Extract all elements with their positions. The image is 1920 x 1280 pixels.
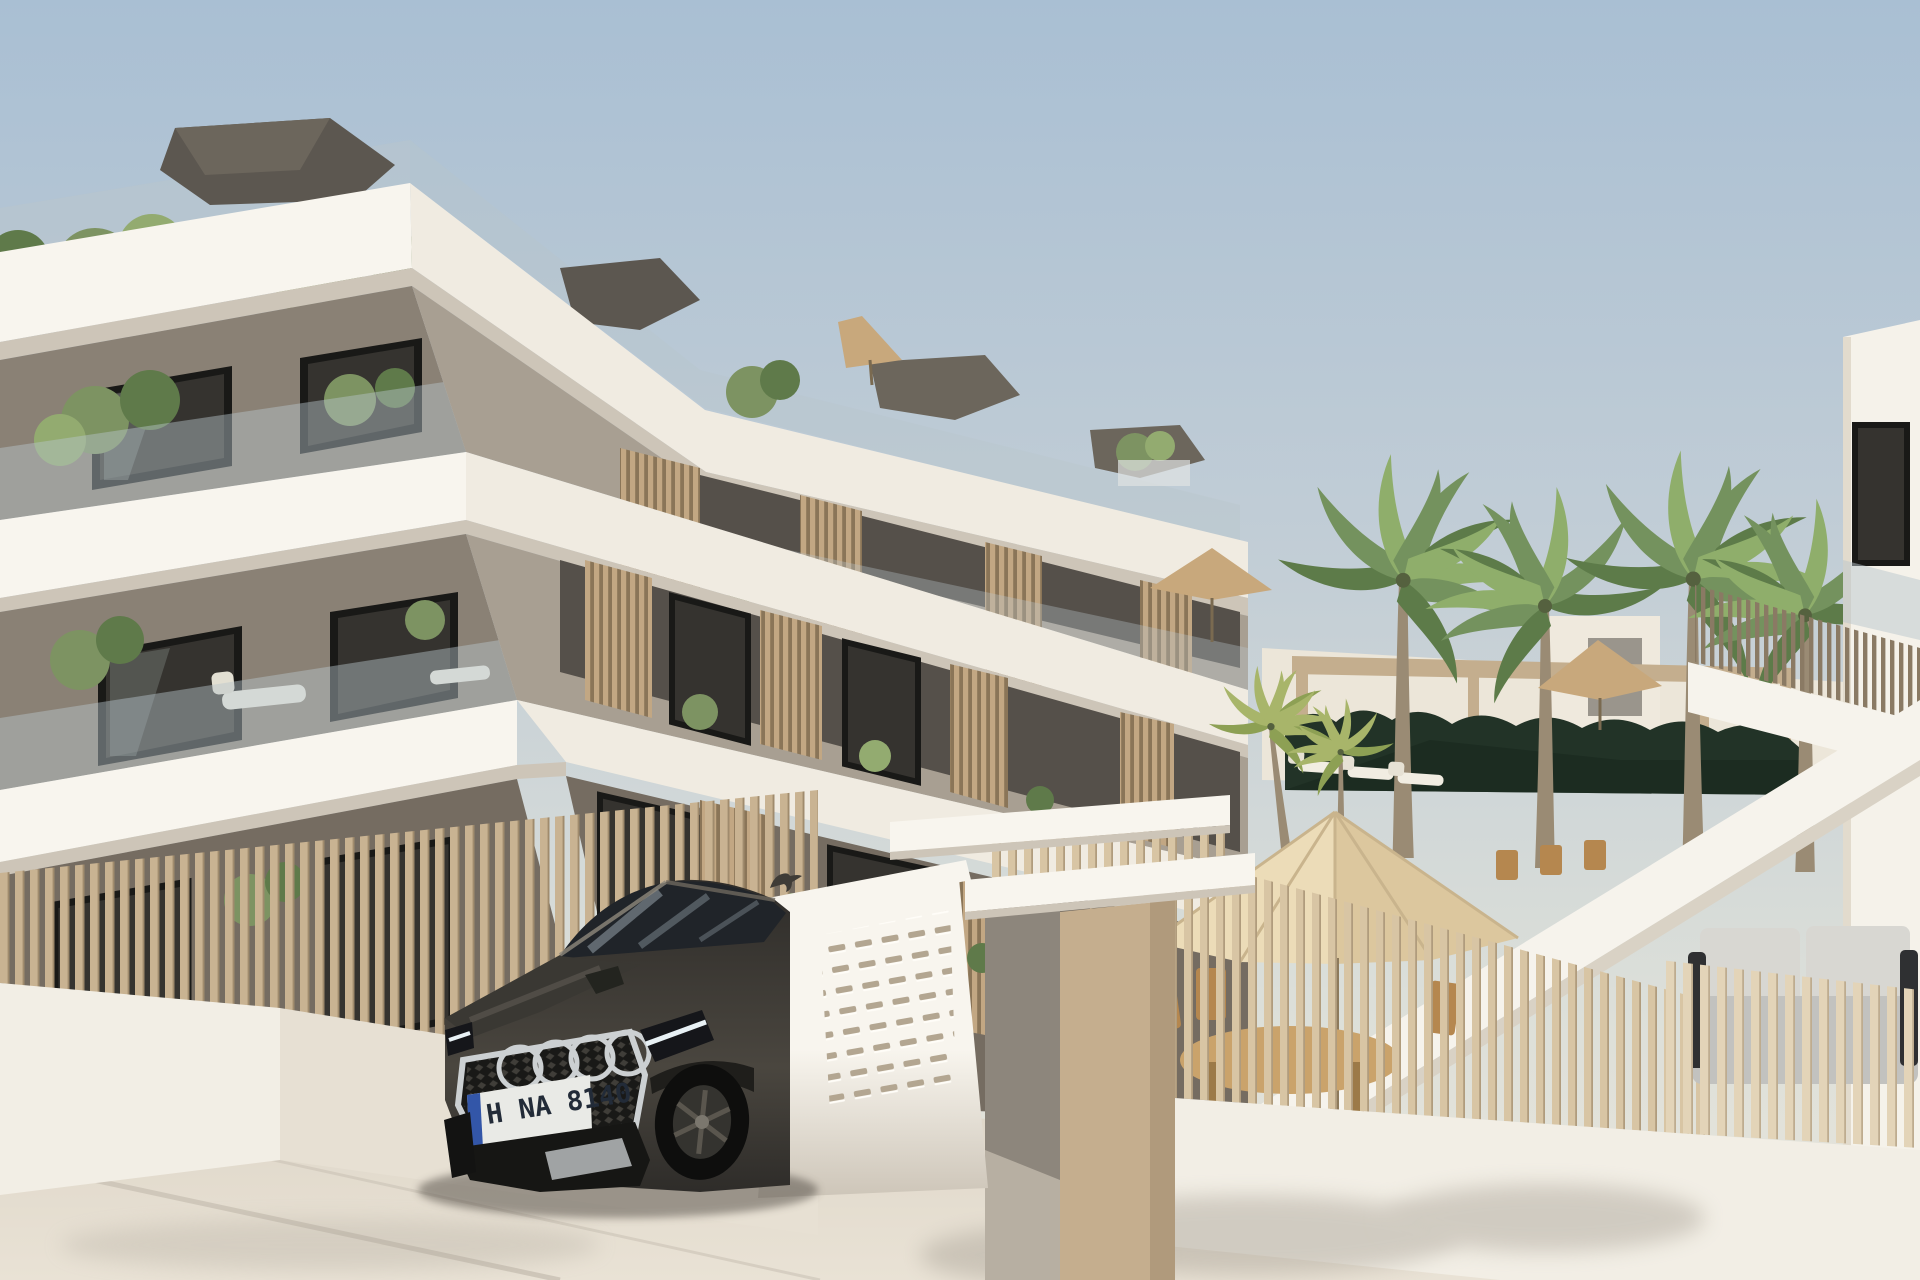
wood-slat-screen [585, 560, 652, 718]
wood-slat-screen [950, 664, 1008, 808]
wood-slat-screen [760, 610, 822, 760]
roof-planter [1118, 460, 1190, 486]
sofa-slat-fence [1660, 960, 1920, 1148]
fence-shadow [60, 1219, 600, 1271]
balcony-plant [859, 740, 891, 772]
render-canvas: H NA 8140 [0, 0, 1920, 1280]
mailbox-panel [820, 910, 956, 1112]
window [1855, 425, 1907, 563]
mailbox-wall [758, 860, 988, 1198]
architectural-render: H NA 8140 [0, 0, 1920, 1280]
balcony-plant [682, 694, 718, 730]
pillar-shade [1150, 900, 1175, 1280]
low-wall-front [0, 983, 280, 1195]
